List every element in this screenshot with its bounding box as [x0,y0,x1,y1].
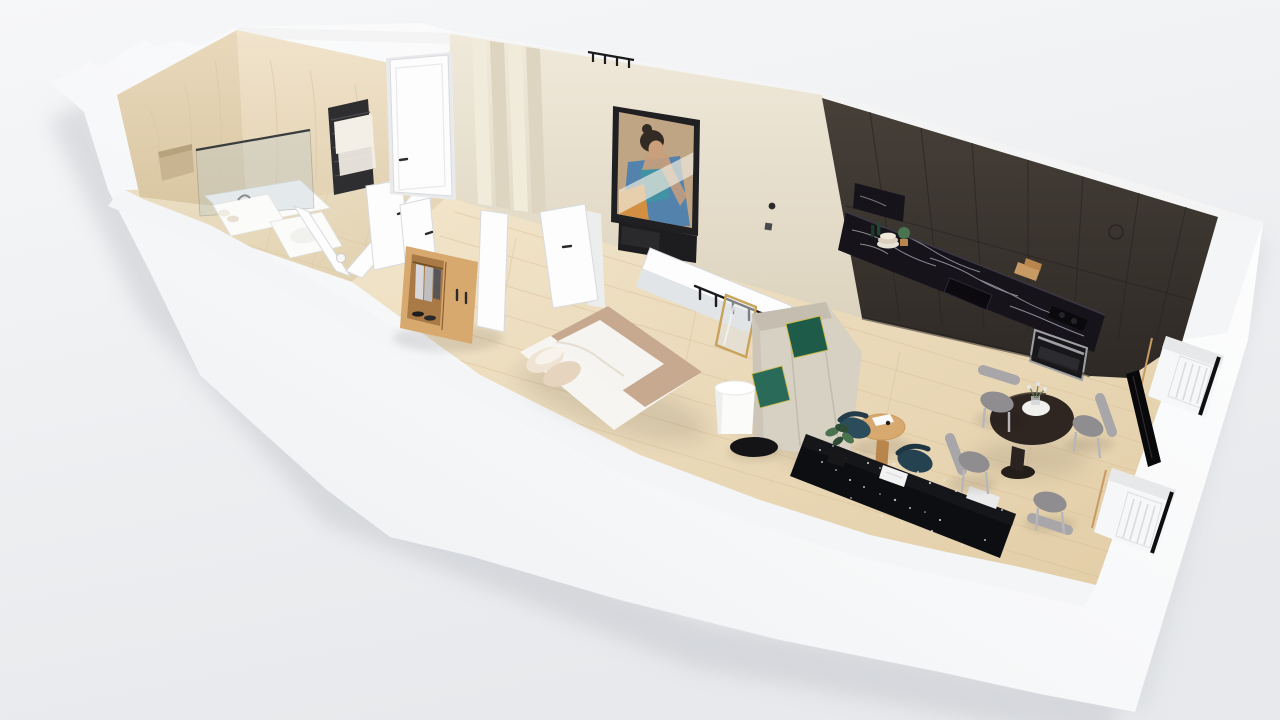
dining-table-column [1010,446,1025,472]
side-table [730,437,778,457]
hanging-garment [424,266,433,302]
bedroom-wall [611,106,700,263]
kitchen-plant [898,227,910,239]
floor-plan-render [0,0,1280,720]
sink-towel [218,210,230,217]
hob-burner [1059,312,1065,318]
hanging-garment [415,264,424,300]
shoes [424,315,436,320]
sink-towel-2 [227,216,239,223]
bedroom-door-handle [563,246,571,247]
thermostat [764,223,772,231]
plant-pot [900,239,908,246]
bottle [877,222,880,235]
entry-door-handle [400,159,407,160]
shoes [412,311,424,316]
green-cushion [786,316,828,358]
vase [1031,396,1040,405]
toilet-paper-holder [337,254,346,263]
wardrobe-door-open [477,210,508,332]
plates [880,233,896,240]
floor-lamp-top [715,381,755,395]
floor-plan-stage [0,0,1280,720]
flower [1036,382,1040,386]
flower [1027,385,1031,389]
bottle [871,225,874,237]
hob-burner [1071,318,1077,324]
flower [1043,387,1047,391]
hanging-garment [433,268,441,300]
table-cup [886,421,890,425]
wall-spotlight [769,203,776,210]
